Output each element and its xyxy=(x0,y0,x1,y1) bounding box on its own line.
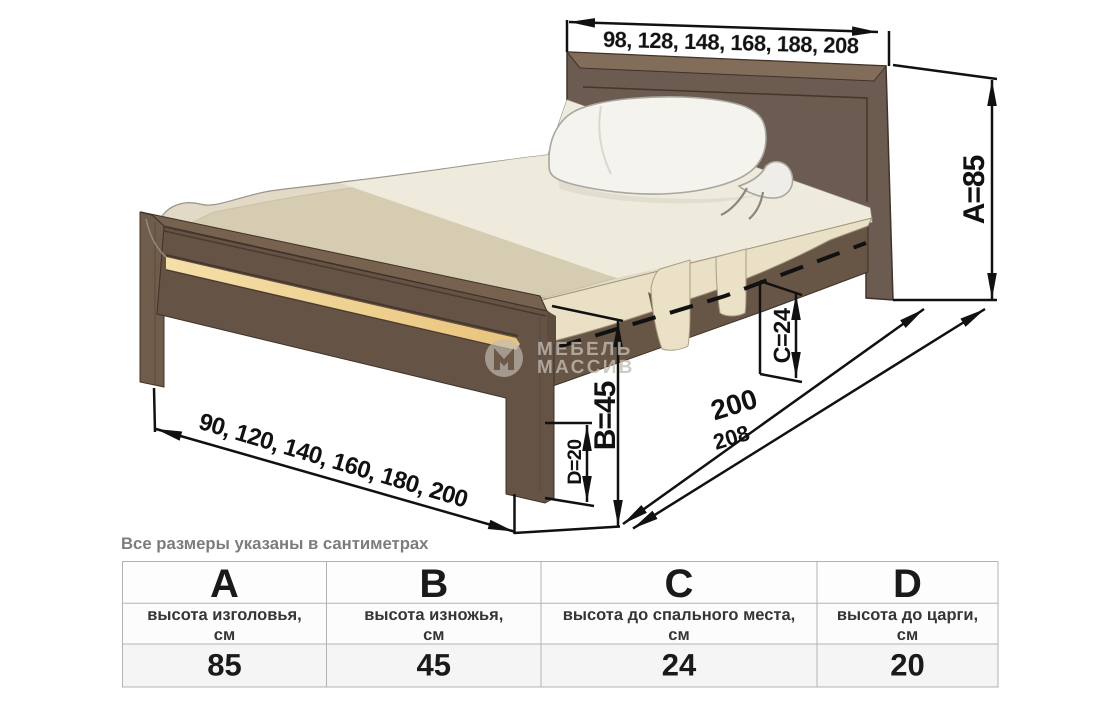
svg-text:см: см xyxy=(423,626,444,644)
svg-text:Все размеры указаны в сантимет: Все размеры указаны в сантиметрах xyxy=(121,534,429,553)
svg-text:см: см xyxy=(897,626,918,644)
svg-text:высота изголовья,: высота изголовья, xyxy=(147,606,301,624)
svg-text:D: D xyxy=(893,562,922,606)
svg-text:С=24: С=24 xyxy=(769,308,795,363)
svg-text:45: 45 xyxy=(417,648,451,683)
svg-text:С: С xyxy=(665,562,694,606)
svg-text:85: 85 xyxy=(207,648,241,683)
svg-text:D=20: D=20 xyxy=(564,439,586,485)
svg-text:А: А xyxy=(210,562,239,606)
svg-text:высота до спального места,: высота до спального места, xyxy=(563,606,796,624)
svg-text:20: 20 xyxy=(890,648,924,683)
svg-text:В: В xyxy=(419,562,448,606)
svg-text:высота до царги,: высота до царги, xyxy=(837,606,978,624)
svg-text:В=45: В=45 xyxy=(589,381,622,450)
svg-text:см: см xyxy=(668,626,689,644)
svg-text:МАССИВ: МАССИВ xyxy=(537,357,635,378)
svg-text:А=85: А=85 xyxy=(958,155,991,224)
svg-text:см: см xyxy=(214,626,235,644)
svg-text:высота изножья,: высота изножья, xyxy=(364,606,503,624)
svg-text:24: 24 xyxy=(662,648,697,683)
